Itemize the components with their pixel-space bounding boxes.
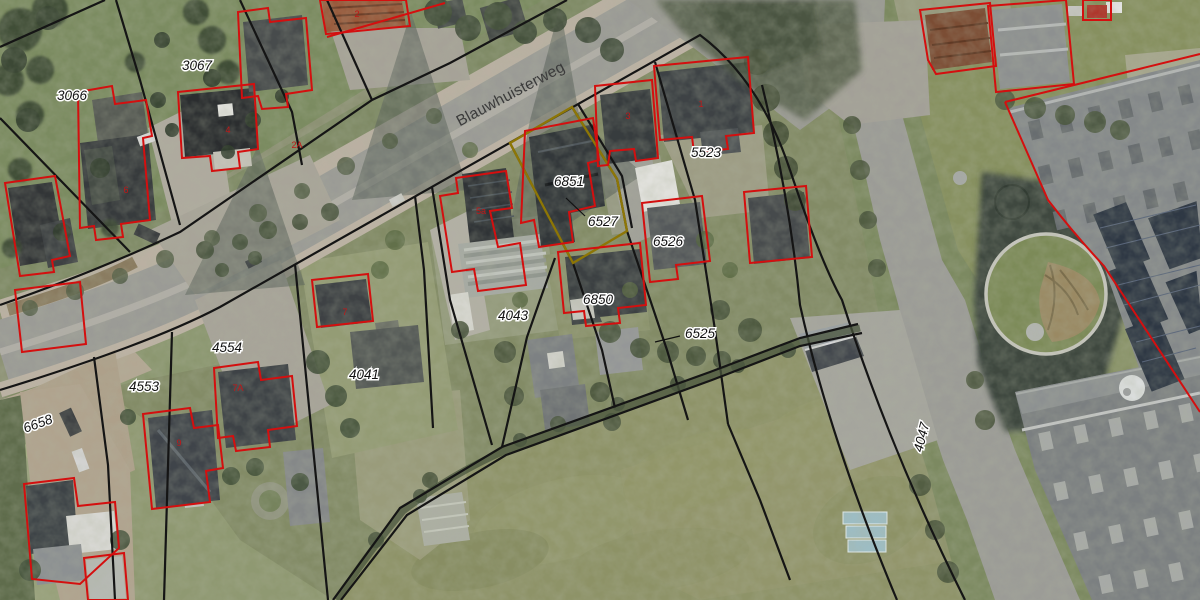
svg-text:6851: 6851 bbox=[554, 174, 584, 189]
svg-text:6526: 6526 bbox=[653, 234, 684, 249]
svg-text:4: 4 bbox=[225, 125, 230, 135]
svg-text:3: 3 bbox=[625, 111, 630, 121]
svg-text:4041: 4041 bbox=[349, 367, 379, 382]
svg-text:5a: 5a bbox=[476, 206, 486, 216]
svg-text:6527: 6527 bbox=[588, 214, 619, 229]
svg-text:6850: 6850 bbox=[583, 292, 614, 307]
svg-text:9: 9 bbox=[176, 438, 181, 448]
svg-text:7A: 7A bbox=[232, 383, 243, 393]
svg-text:7: 7 bbox=[342, 307, 347, 317]
svg-text:5523: 5523 bbox=[691, 145, 722, 160]
svg-text:6: 6 bbox=[123, 185, 128, 195]
svg-text:4043: 4043 bbox=[498, 308, 529, 323]
svg-text:4554: 4554 bbox=[212, 340, 242, 355]
svg-text:3066: 3066 bbox=[57, 88, 88, 103]
svg-text:4553: 4553 bbox=[129, 379, 160, 394]
svg-text:6525: 6525 bbox=[685, 326, 716, 341]
svg-text:2A: 2A bbox=[291, 140, 302, 150]
svg-text:1: 1 bbox=[698, 99, 703, 109]
svg-text:2: 2 bbox=[354, 9, 359, 19]
svg-text:3067: 3067 bbox=[182, 58, 213, 73]
